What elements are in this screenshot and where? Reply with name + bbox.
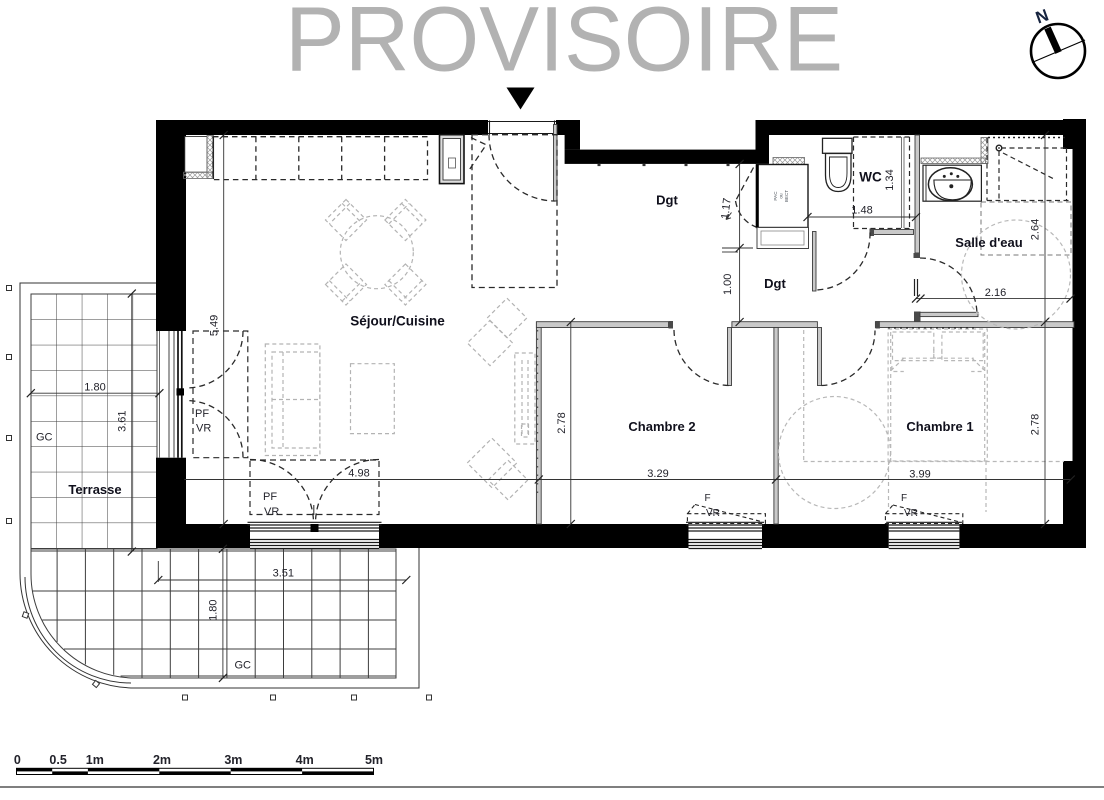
svg-text:2m: 2m: [153, 753, 171, 767]
svg-text:Dgt: Dgt: [656, 193, 678, 208]
svg-text:3m: 3m: [224, 753, 242, 767]
svg-text:F: F: [901, 493, 907, 504]
svg-text:2.78: 2.78: [1030, 414, 1042, 435]
svg-text:F: F: [705, 493, 711, 504]
svg-text:Séjour/Cuisine: Séjour/Cuisine: [350, 314, 445, 329]
svg-text:PROVISOIRE: PROVISOIRE: [285, 0, 843, 91]
svg-text:2.78: 2.78: [556, 412, 568, 433]
svg-text:ou: ou: [779, 193, 784, 199]
svg-text:3.29: 3.29: [647, 468, 668, 480]
svg-text:4.98: 4.98: [348, 468, 369, 480]
svg-text:0.5: 0.5: [49, 753, 66, 767]
svg-text:VR: VR: [264, 506, 279, 518]
svg-text:1.00: 1.00: [722, 274, 734, 295]
svg-text:Terrasse: Terrasse: [68, 482, 121, 497]
svg-text:GC: GC: [235, 660, 252, 672]
svg-text:1m: 1m: [86, 753, 104, 767]
svg-text:PF: PF: [263, 491, 277, 503]
svg-text:WC: WC: [859, 170, 882, 185]
svg-text:3.61: 3.61: [117, 410, 129, 431]
svg-text:VR: VR: [904, 508, 918, 519]
svg-text:PF: PF: [195, 408, 209, 420]
svg-text:3.99: 3.99: [909, 469, 930, 481]
svg-text:4m: 4m: [296, 753, 314, 767]
svg-text:2.16: 2.16: [985, 287, 1006, 299]
svg-text:GC: GC: [36, 432, 53, 444]
svg-text:2.64: 2.64: [1030, 219, 1042, 240]
svg-text:0: 0: [14, 753, 21, 767]
svg-text:Chambre 1: Chambre 1: [906, 419, 973, 434]
svg-text:PAC: PAC: [773, 191, 778, 201]
svg-text:5m: 5m: [365, 753, 383, 767]
svg-text:VR: VR: [706, 508, 720, 519]
svg-text:Dgt: Dgt: [764, 276, 786, 291]
svg-text:VR: VR: [196, 423, 211, 435]
svg-text:1.80: 1.80: [208, 599, 220, 620]
svg-text:1.48: 1.48: [851, 205, 872, 217]
svg-text:3.51: 3.51: [273, 568, 294, 580]
svg-text:Chambre 2: Chambre 2: [628, 419, 695, 434]
svg-text:1.34: 1.34: [884, 169, 896, 190]
svg-text:BECT: BECT: [784, 190, 789, 202]
svg-text:Salle d'eau: Salle d'eau: [955, 235, 1022, 250]
svg-text:1.80: 1.80: [84, 382, 105, 394]
svg-text:5.49: 5.49: [208, 315, 220, 336]
